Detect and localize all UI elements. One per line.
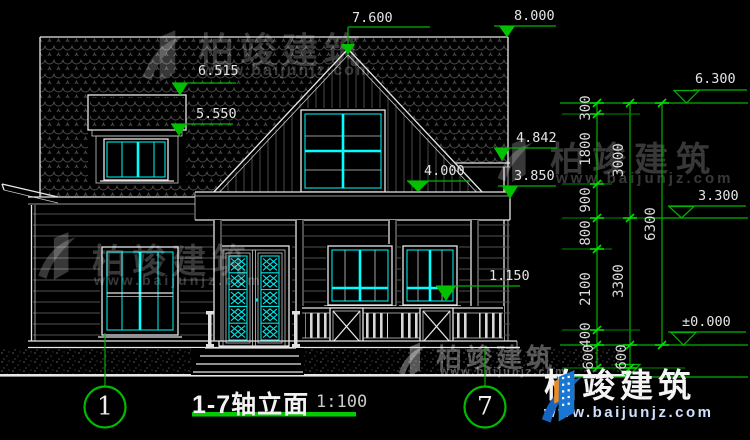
elevation-label: 1.150 [489,268,530,284]
elevation-marker-3300 [648,206,748,218]
elevation-label: 3.850 [514,168,555,184]
elevation-marker-right-eave-top [494,148,557,161]
dim-label: 600 [581,344,597,369]
elevation-label: 5.550 [196,106,237,122]
elevation-marker-railing [436,286,520,301]
dim-label: 6300 [643,207,659,241]
elevation-marker-porch-roof [407,181,470,192]
drawing-scale: 1:100 [316,392,367,412]
elevation-marker-right-eave-bottom [498,186,556,199]
elevation-label: 8.000 [514,8,555,24]
elevation-label: 6.515 [198,63,239,79]
elevation-marker-gable-peak [341,27,430,55]
dim-label: 900 [578,187,594,212]
dim-label: 2100 [578,272,594,306]
elevation-marker-dormer-top [172,83,236,96]
elevation-label: 3.300 [698,188,739,204]
dim-label: 1800 [578,132,594,166]
dim-label: 800 [578,220,594,245]
elevation-marker-ridge [494,26,556,38]
dim-label: 600 [614,344,630,369]
elevation-label: 4.842 [516,130,557,146]
dim-label: 3300 [611,264,627,298]
elevation-label: 4.000 [424,163,465,179]
elevation-marker-dormer-eave [171,124,233,136]
elevation-drawing: 柏竣建筑 www.baijunjz.com 柏竣建筑 www.baijunjz.… [0,0,750,440]
dim-label: 300 [578,95,594,120]
brand-footer: 柏竣建筑 www.baijunjz.com [538,368,713,421]
dim-label: 3000 [611,143,627,177]
elevation-label: 7.600 [352,10,393,26]
axis-bubble-7: 7 [477,391,493,420]
drawing-title: 1-7轴立面 [192,385,309,421]
brand-logo-icon [538,368,586,426]
elevation-label: 6.300 [695,71,736,87]
axis-bubble-1: 1 [97,391,113,420]
elevation-label: ±0.000 [682,314,731,330]
